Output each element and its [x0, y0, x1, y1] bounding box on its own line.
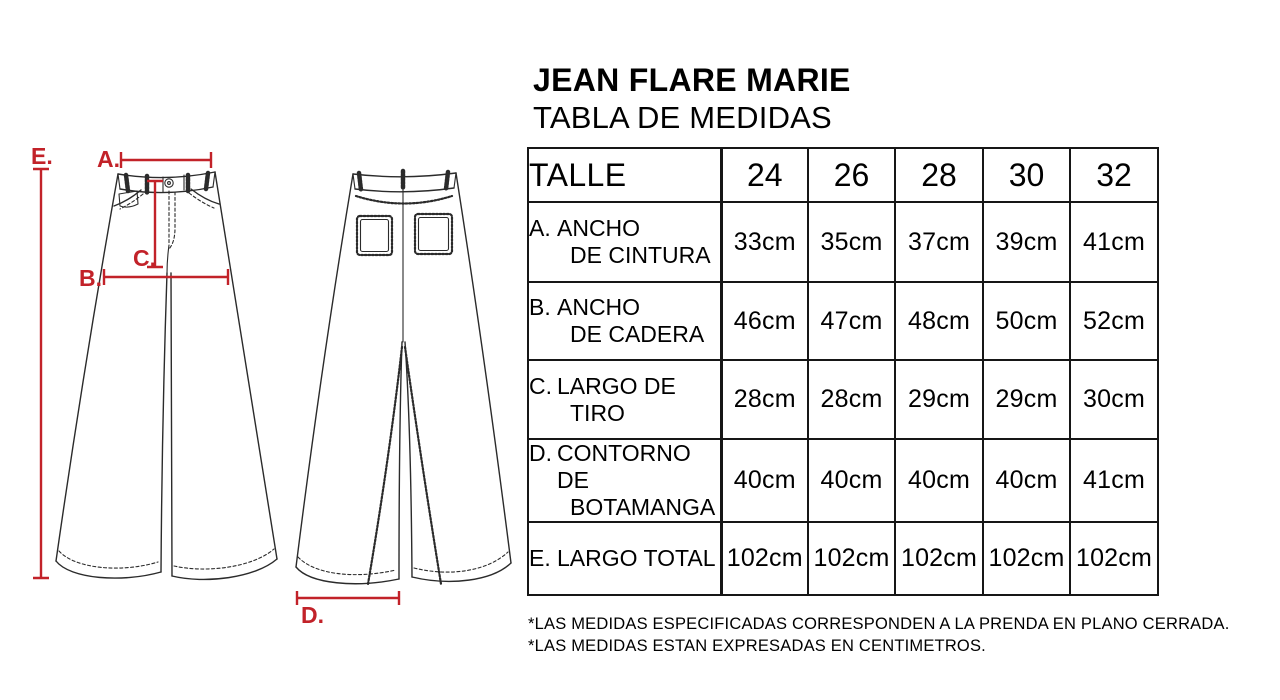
- row-label-line2: BOTAMANGA: [557, 494, 720, 521]
- table-row-contorno-botamanga: D. CONTORNO DE BOTAMANGA 40cm 40cm 40cm …: [528, 439, 1158, 522]
- title-block: JEAN FLARE MARIE TABLA DE MEDIDAS: [533, 62, 851, 136]
- cell-value: 37cm: [895, 202, 983, 282]
- size-table: TALLE 24 26 28 30 32 A. ANCHO DE CINTURA…: [527, 147, 1159, 596]
- cell-value: 29cm: [983, 360, 1070, 439]
- jeans-technical-drawing: E. A. C. B. D.: [0, 0, 520, 700]
- row-prefix: C.: [529, 373, 557, 400]
- measure-line-E: [33, 169, 49, 578]
- cell-value: 102cm: [1070, 522, 1158, 595]
- cell-value: 28cm: [721, 360, 808, 439]
- row-label-line2: DE CADERA: [557, 321, 704, 348]
- cell-value: 46cm: [721, 282, 808, 360]
- row-label-line1: ANCHO: [557, 215, 711, 242]
- row-label: E. LARGO TOTAL: [528, 522, 721, 595]
- row-label-line2: TIRO: [557, 400, 676, 427]
- cell-value: 102cm: [808, 522, 895, 595]
- label-D: D.: [301, 602, 324, 628]
- jeans-back-view-drawing: [296, 171, 511, 584]
- header-talle: TALLE: [528, 148, 721, 202]
- header-size-26: 26: [808, 148, 895, 202]
- row-label-line1: LARGO DE: [557, 373, 676, 400]
- table-row-largo-total: E. LARGO TOTAL 102cm 102cm 102cm 102cm 1…: [528, 522, 1158, 595]
- row-label: B. ANCHO DE CADERA: [528, 282, 721, 360]
- back-belt-loops: [359, 171, 448, 190]
- page-title: JEAN FLARE MARIE: [533, 62, 851, 99]
- row-label-line2: DE CINTURA: [557, 242, 711, 269]
- label-A: A.: [97, 146, 120, 172]
- measurement-lines: [33, 152, 399, 605]
- footnotes: *LAS MEDIDAS ESPECIFICADAS CORRESPONDEN …: [528, 613, 1230, 657]
- label-C: C.: [133, 245, 156, 271]
- table-row-largo-tiro: C. LARGO DE TIRO 28cm 28cm 29cm 29cm 30c…: [528, 360, 1158, 439]
- cell-value: 102cm: [721, 522, 808, 595]
- cell-value: 40cm: [721, 439, 808, 522]
- page-subtitle: TABLA DE MEDIDAS: [533, 99, 851, 136]
- cell-value: 33cm: [721, 202, 808, 282]
- cell-value: 40cm: [808, 439, 895, 522]
- row-label: A. ANCHO DE CINTURA: [528, 202, 721, 282]
- table-row-ancho-cadera: B. ANCHO DE CADERA 46cm 47cm 48cm 50cm 5…: [528, 282, 1158, 360]
- header-size-32: 32: [1070, 148, 1158, 202]
- cell-value: 40cm: [895, 439, 983, 522]
- row-label-line1: CONTORNO DE: [557, 440, 720, 494]
- back-pocket-left: [357, 216, 392, 255]
- cell-value: 30cm: [1070, 360, 1158, 439]
- jeans-front-view-drawing: [56, 172, 277, 579]
- header-size-28: 28: [895, 148, 983, 202]
- cell-value: 35cm: [808, 202, 895, 282]
- label-B: B.: [79, 265, 102, 291]
- row-label: C. LARGO DE TIRO: [528, 360, 721, 439]
- measure-line-A: [121, 152, 211, 168]
- cell-value: 52cm: [1070, 282, 1158, 360]
- back-pocket-right: [415, 214, 452, 254]
- cell-value: 102cm: [983, 522, 1070, 595]
- footnote-1: *LAS MEDIDAS ESPECIFICADAS CORRESPONDEN …: [528, 613, 1230, 635]
- size-table-header-row: TALLE 24 26 28 30 32: [528, 148, 1158, 202]
- row-label: D. CONTORNO DE BOTAMANGA: [528, 439, 721, 522]
- header-size-24: 24: [721, 148, 808, 202]
- measurement-labels: E. A. C. B. D.: [31, 143, 324, 628]
- cell-value: 102cm: [895, 522, 983, 595]
- row-prefix: E.: [529, 545, 557, 572]
- row-prefix: D.: [529, 440, 557, 467]
- cell-value: 41cm: [1070, 439, 1158, 522]
- cell-value: 39cm: [983, 202, 1070, 282]
- cell-value: 41cm: [1070, 202, 1158, 282]
- cell-value: 29cm: [895, 360, 983, 439]
- row-label-line1: LARGO TOTAL: [557, 545, 716, 572]
- label-E: E.: [31, 143, 53, 169]
- footnote-2: *LAS MEDIDAS ESTAN EXPRESADAS EN CENTIME…: [528, 635, 1230, 657]
- row-prefix: B.: [529, 294, 557, 321]
- row-prefix: A.: [529, 215, 557, 242]
- cell-value: 48cm: [895, 282, 983, 360]
- cell-value: 47cm: [808, 282, 895, 360]
- cell-value: 40cm: [983, 439, 1070, 522]
- table-row-ancho-cintura: A. ANCHO DE CINTURA 33cm 35cm 37cm 39cm …: [528, 202, 1158, 282]
- cell-value: 28cm: [808, 360, 895, 439]
- row-label-line1: ANCHO: [557, 294, 704, 321]
- header-size-30: 30: [983, 148, 1070, 202]
- cell-value: 50cm: [983, 282, 1070, 360]
- size-chart-sheet: E. A. C. B. D. JEAN FLARE MARIE TABLA DE…: [0, 0, 1280, 700]
